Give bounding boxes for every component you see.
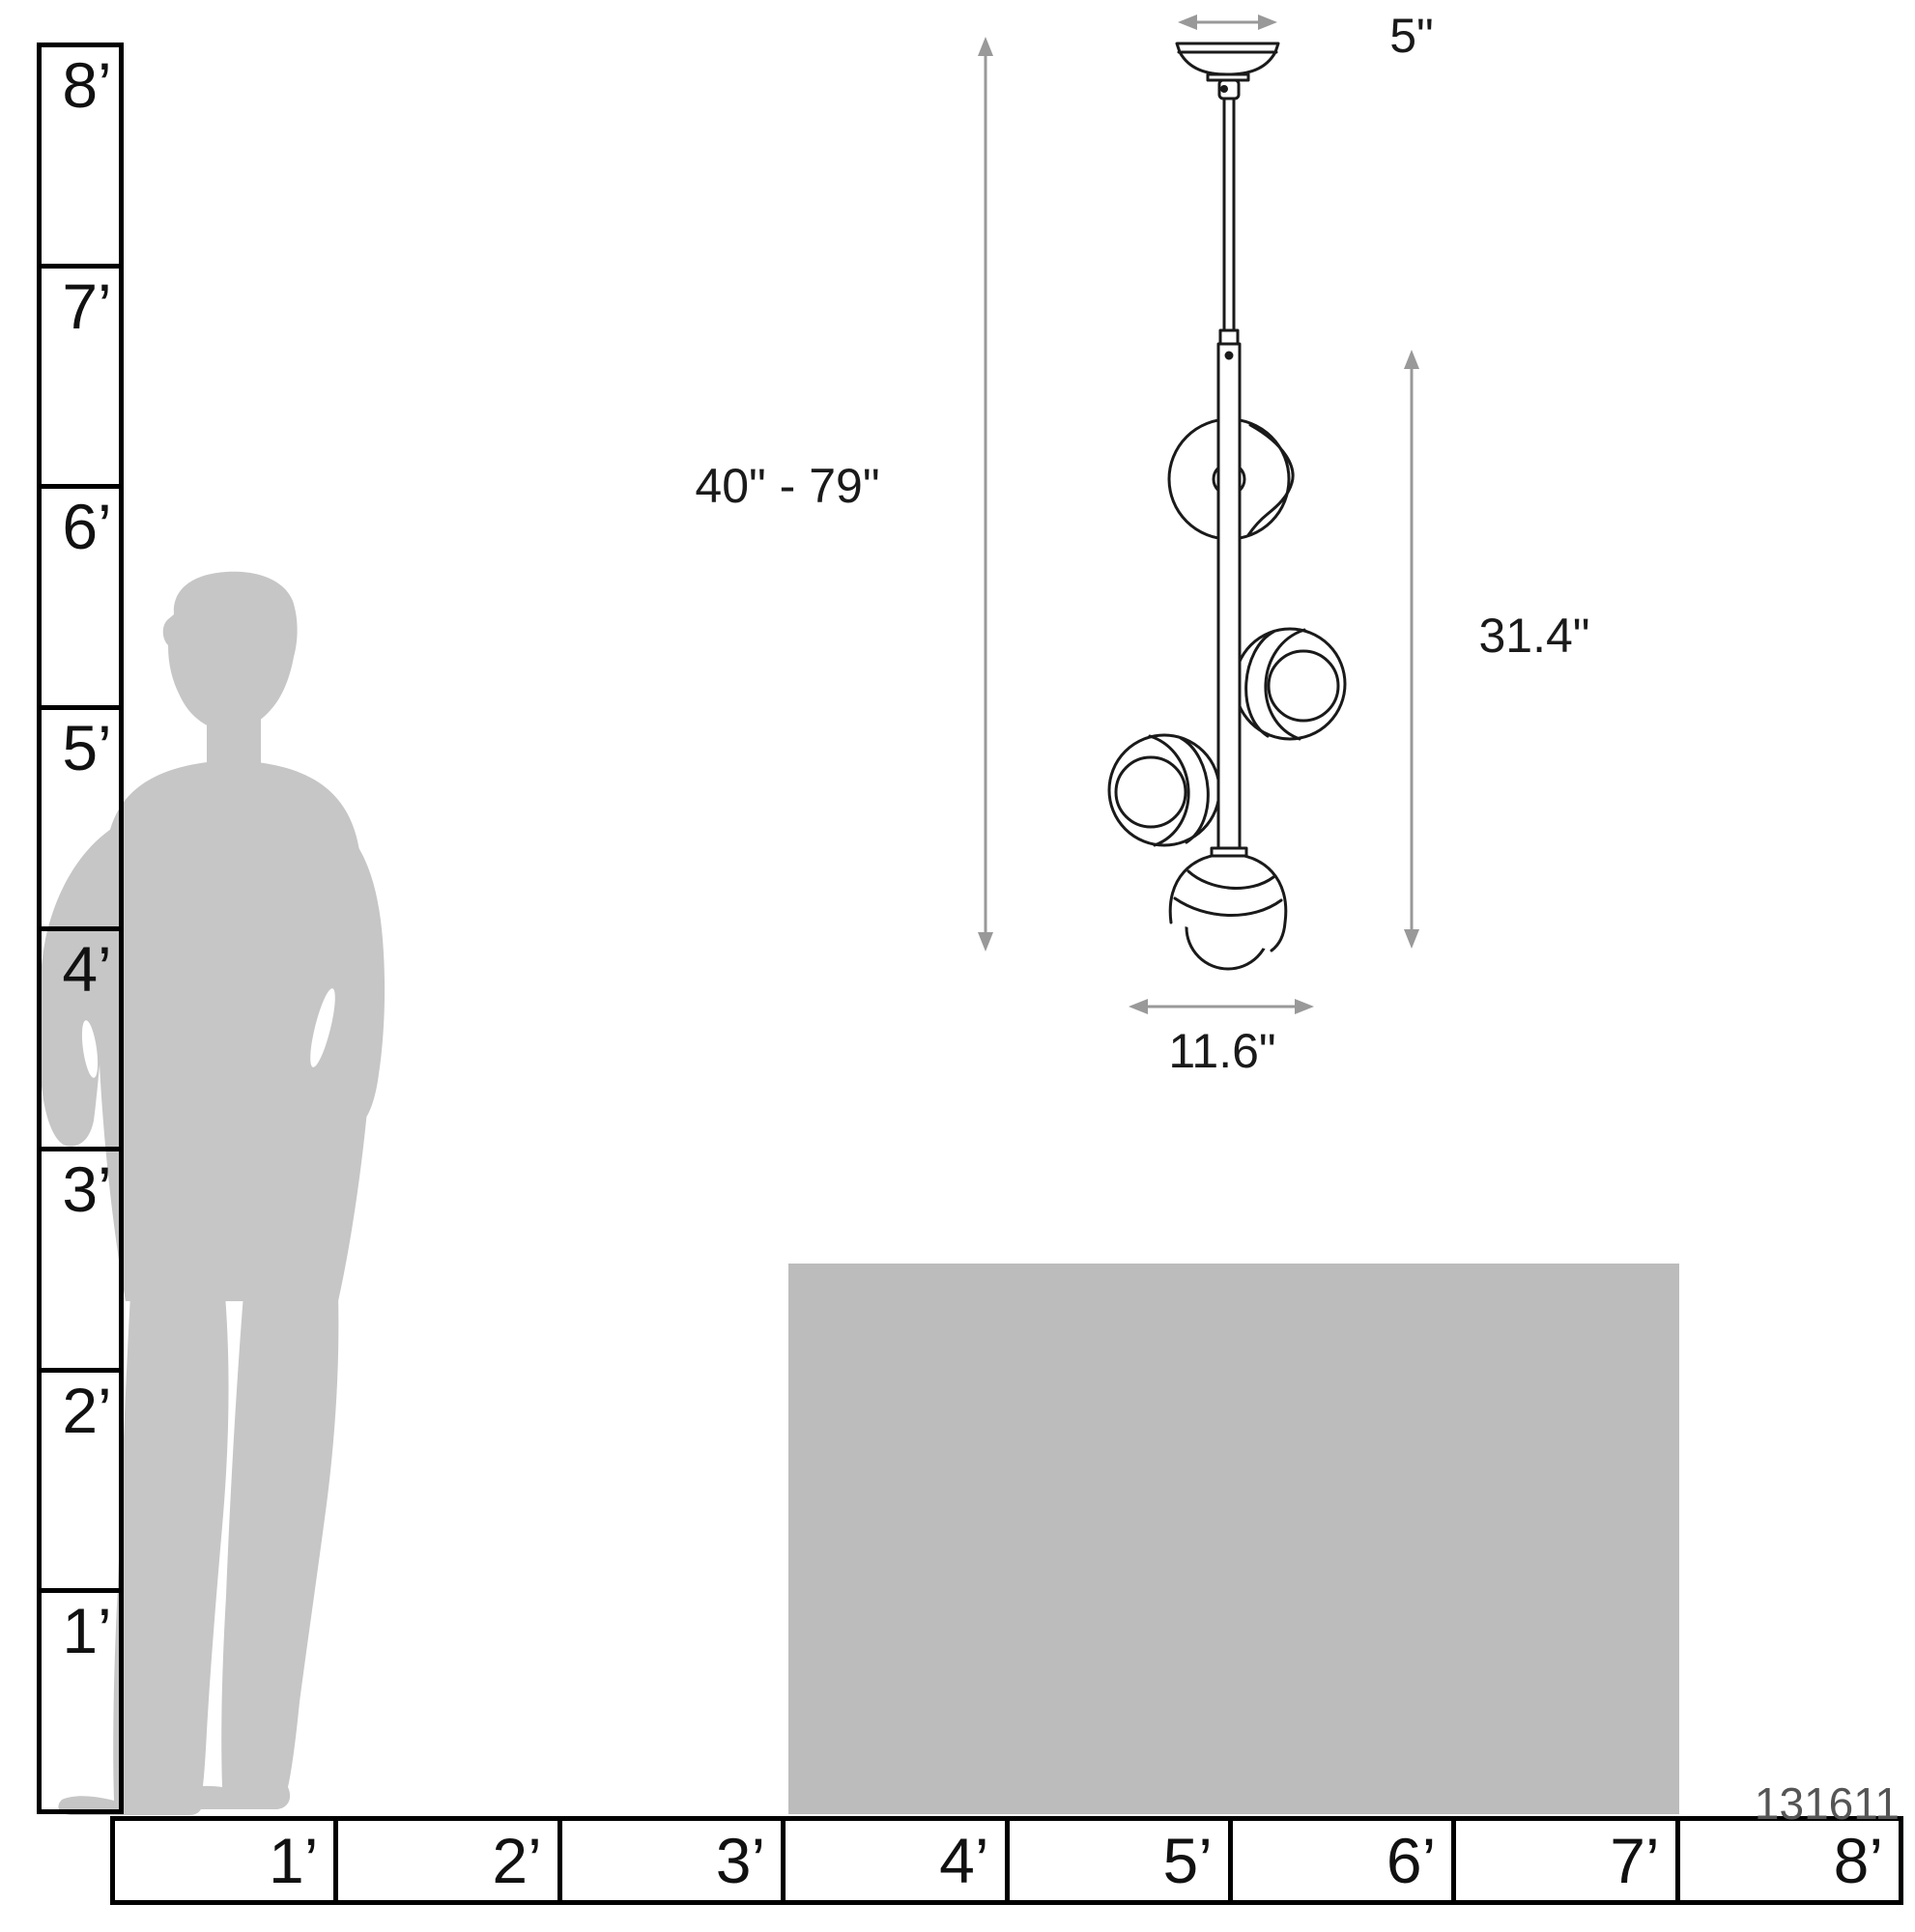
credenza-block [788, 1264, 1679, 1814]
vertical-ruler-cell: 3’ [42, 1147, 119, 1368]
globe-bottom [1170, 854, 1286, 969]
ruler-label: 2’ [492, 1829, 557, 1892]
horizontal-ruler-cell: 1’ [115, 1821, 333, 1900]
ruler-label: 1’ [269, 1829, 333, 1892]
stem-end-flange [1212, 848, 1246, 856]
stem [1218, 344, 1240, 850]
horizontal-ruler-cell: 8’ [1675, 1821, 1899, 1900]
fixture-height-arrow [1404, 350, 1419, 949]
overall-height-arrow [978, 37, 993, 952]
horizontal-ruler-cell: 4’ [781, 1821, 1004, 1900]
scale-diagram: 8’ 7’ 6’ 5’ 4’ 3’ 2’ 1’ 1’ 2’ 3’ 4’ 5’ 6… [0, 0, 1915, 1932]
fixture-height-label: 31.4" [1433, 610, 1636, 663]
ruler-label: 5’ [48, 710, 126, 780]
downrod-collar [1220, 330, 1238, 344]
diagram-artwork [0, 0, 1915, 1932]
downrod [1224, 97, 1234, 330]
vertical-ruler-cell: 2’ [42, 1368, 119, 1589]
ruler-label: 3’ [48, 1151, 126, 1221]
stem-screw-dot [1226, 353, 1232, 358]
horizontal-ruler-cell: 3’ [557, 1821, 781, 1900]
vertical-ruler-cell: 6’ [42, 484, 119, 705]
ruler-label: 7’ [48, 269, 126, 338]
vertical-ruler-cell: 8’ [42, 47, 119, 264]
ruler-label: 6’ [1386, 1829, 1451, 1892]
canopy-width-arrow [1178, 14, 1277, 30]
canopy-width-label: 5" [1349, 10, 1474, 63]
ruler-label: 5’ [1163, 1829, 1228, 1892]
horizontal-ruler-cell: 2’ [333, 1821, 557, 1900]
product-code: 131611 [1614, 1777, 1900, 1830]
ruler-label: 8’ [48, 47, 126, 117]
ruler-label: 2’ [48, 1373, 126, 1442]
ruler-label: 1’ [48, 1593, 126, 1662]
fixture-width-arrow [1129, 999, 1314, 1014]
fixture-width-label: 11.6" [1119, 1025, 1326, 1078]
globe-left [1109, 735, 1219, 845]
vertical-ruler-cell: 5’ [42, 705, 119, 926]
ruler-label: 8’ [1834, 1829, 1899, 1892]
horizontal-ruler-cell: 5’ [1005, 1821, 1228, 1900]
vertical-ruler-cell: 4’ [42, 926, 119, 1148]
globe-right [1235, 629, 1345, 739]
vertical-ruler-cell: 1’ [42, 1588, 119, 1809]
pendant-fixture-drawing [1109, 43, 1345, 969]
horizontal-ruler-cell: 6’ [1228, 1821, 1451, 1900]
vertical-ruler: 8’ 7’ 6’ 5’ 4’ 3’ 2’ 1’ [37, 43, 124, 1814]
canopy [1177, 43, 1278, 99]
ruler-label: 3’ [716, 1829, 781, 1892]
ruler-label: 6’ [48, 489, 126, 558]
ruler-label: 7’ [1610, 1829, 1674, 1892]
ruler-label: 4’ [939, 1829, 1004, 1892]
overall-height-label: 40" - 79" [633, 460, 942, 513]
horizontal-ruler-cell: 7’ [1451, 1821, 1674, 1900]
vertical-ruler-cell: 7’ [42, 264, 119, 485]
ruler-label: 4’ [48, 931, 126, 1001]
